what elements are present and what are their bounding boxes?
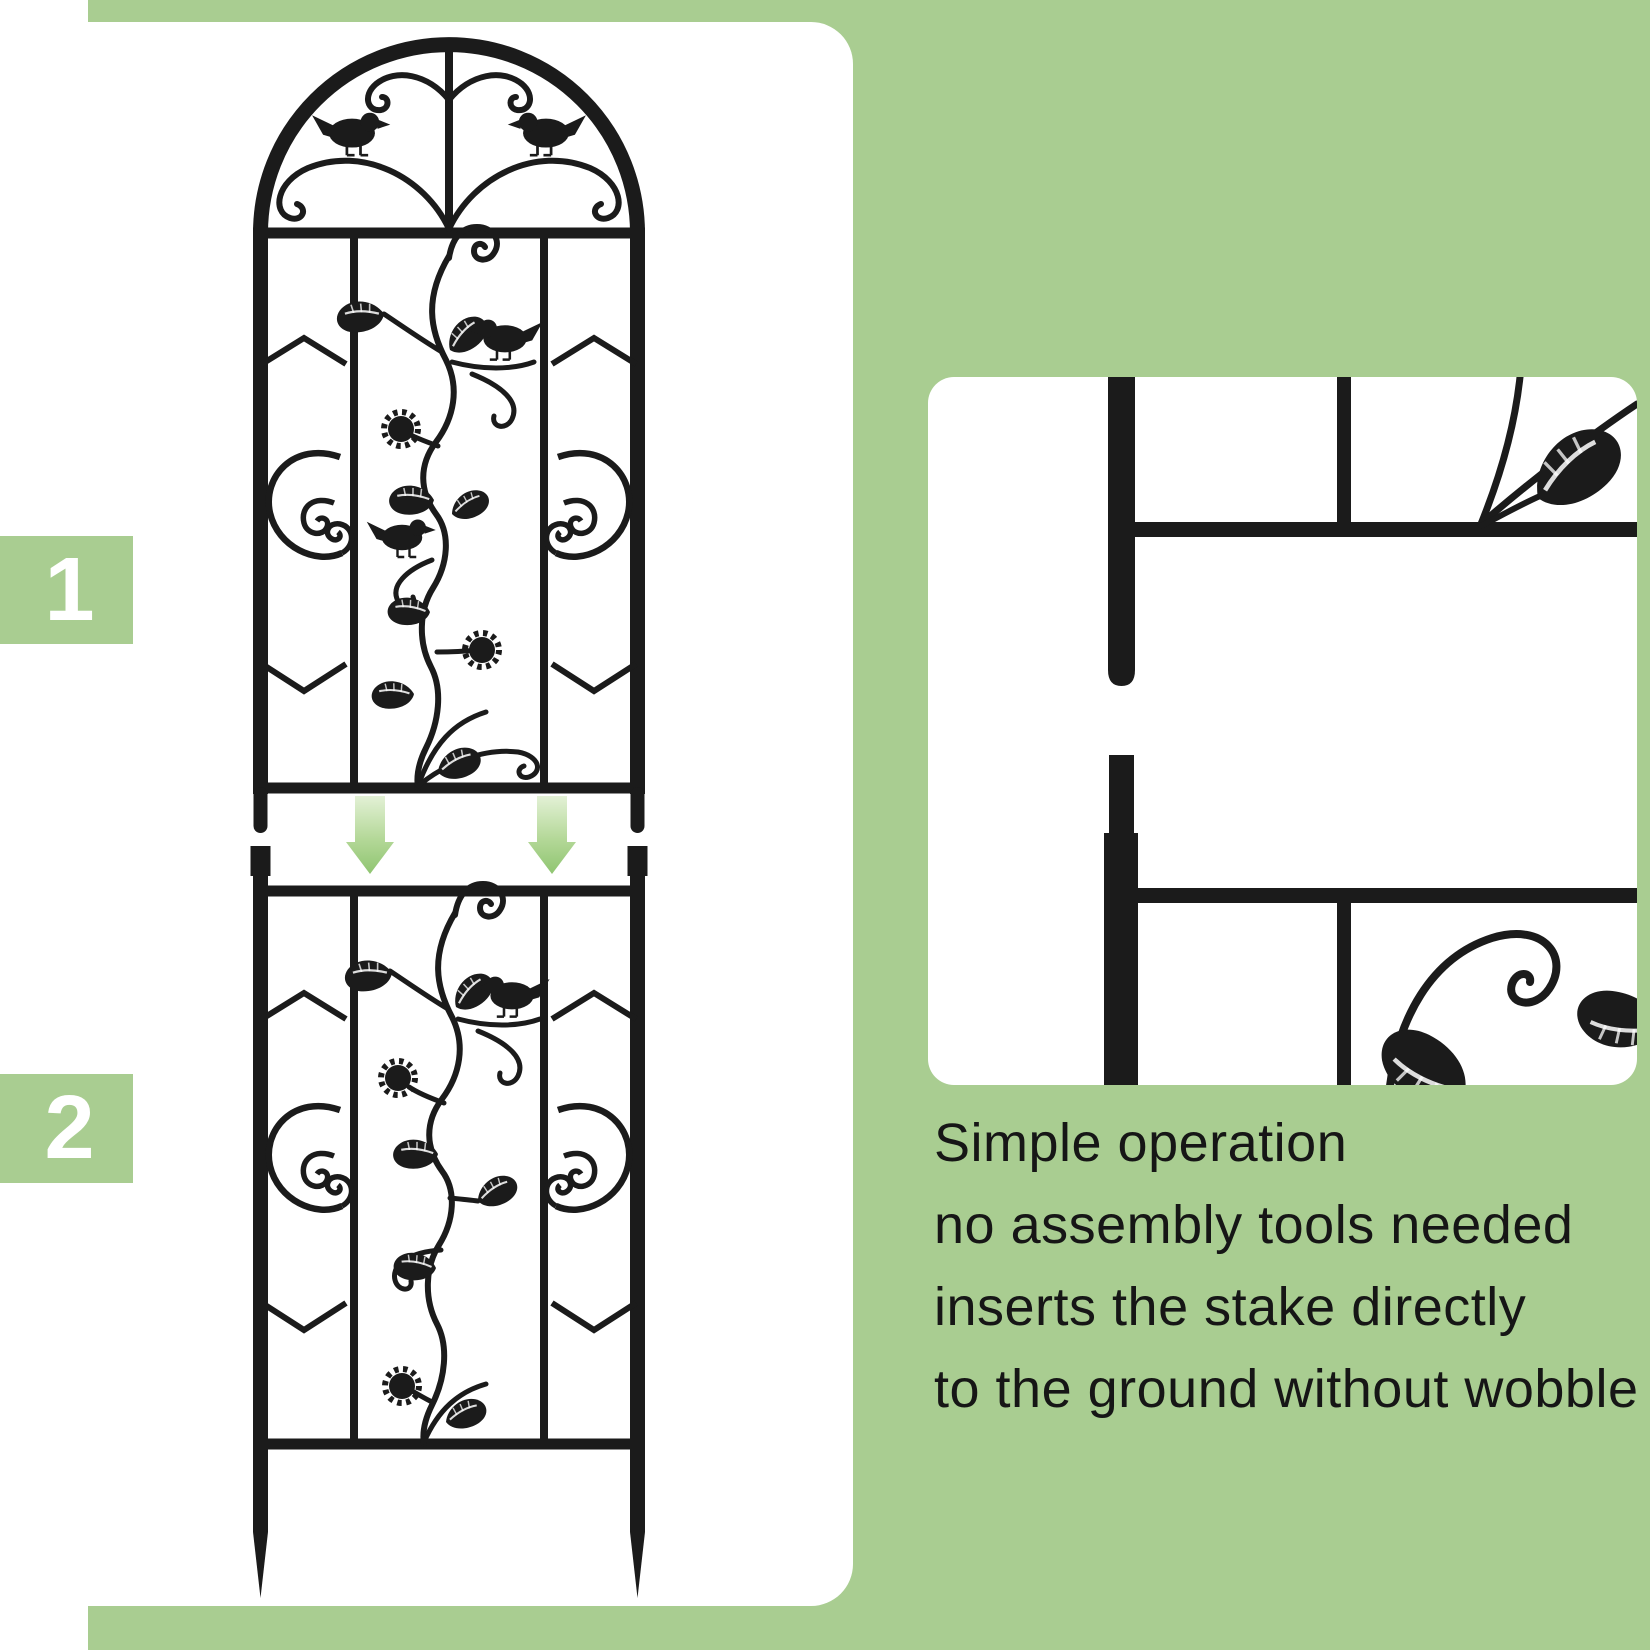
leaf-icon: [447, 487, 492, 523]
instruction-text: Simple operation no assembly tools neede…: [934, 1102, 1634, 1430]
instruction-line: no assembly tools needed: [934, 1184, 1634, 1266]
leaf-icon: [341, 953, 395, 997]
leaf-icon: [473, 1172, 521, 1210]
down-arrow-icon: [346, 796, 394, 874]
assembly-arrows: [346, 796, 576, 874]
upper-trellis-piece: [253, 45, 645, 826]
leaf-icon: [387, 481, 437, 519]
leaf-icon: [391, 1135, 441, 1173]
instruction-line: Simple operation: [934, 1102, 1634, 1184]
bird-icon: [312, 113, 390, 156]
leaf-icon: [1568, 977, 1650, 1063]
lower-trellis-piece: [253, 846, 645, 1598]
leaf-icon: [435, 745, 484, 782]
step-1-badge: 1: [0, 536, 133, 644]
flower-icon: [465, 633, 499, 667]
step-2-label: 2: [44, 1077, 94, 1180]
leaf-icon: [333, 294, 387, 338]
leaf-icon: [369, 676, 416, 713]
down-arrow-icon: [528, 796, 576, 874]
leaf-icon: [1519, 417, 1634, 517]
instruction-line: to the ground without wobble: [934, 1348, 1634, 1430]
bird-icon: [508, 113, 586, 156]
flower-icon: [384, 412, 418, 446]
bird-icon: [367, 520, 436, 558]
step-1-label: 1: [44, 539, 94, 642]
detail-lower-socket: [1104, 755, 1650, 1124]
instruction-line: inserts the stake directly: [934, 1266, 1634, 1348]
product-instruction-graphic: 1 2 Simple operation no assembly tools n…: [0, 0, 1650, 1650]
flower-icon: [385, 1369, 419, 1403]
step-2-badge: 2: [0, 1074, 133, 1183]
detail-upper-stake-end: [1108, 377, 1637, 686]
flower-icon: [381, 1061, 415, 1095]
